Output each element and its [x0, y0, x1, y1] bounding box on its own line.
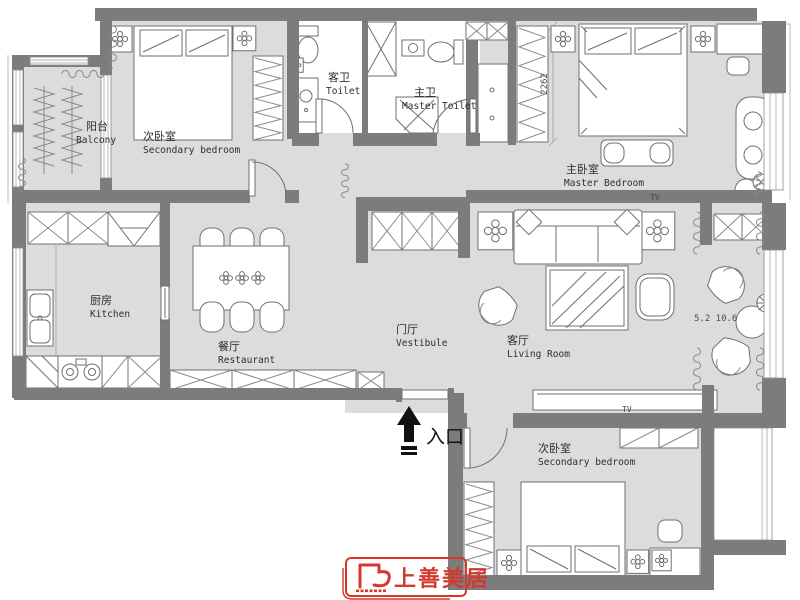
nightstand-lamp-icon [497, 550, 521, 576]
nightstand-lamp-icon [691, 26, 715, 52]
cabinet-icon [487, 22, 508, 40]
bay-window-icon [714, 428, 772, 540]
dining-chair-icon [200, 302, 284, 332]
vestibule-closet [372, 212, 462, 250]
sink-icon [402, 40, 424, 56]
bed-icon [579, 24, 687, 136]
cabinet-icon [102, 356, 128, 388]
label-dining-zh: 餐厅 [218, 339, 240, 353]
dining-table-icon [193, 246, 289, 310]
toilet-icon [298, 26, 318, 63]
corner-cabinet-icon [26, 356, 58, 388]
nightstand-lamp-icon [551, 26, 575, 52]
label-bedroom-bottom-en: Secondary bedroom [538, 457, 636, 468]
cabinet-icon [714, 214, 742, 240]
range-hood-icon [108, 212, 160, 246]
toilet-icon [428, 40, 463, 64]
dining-furniture [193, 228, 289, 332]
label-bedroom-top-zh: 次卧室 [143, 129, 176, 143]
bed-icon [521, 482, 625, 576]
wardrobe-icon [464, 482, 494, 576]
label-bedroom-top-en: Secondary bedroom [143, 145, 241, 156]
label-kitchen-zh: 厨房 [90, 294, 112, 307]
label-guest-toilet-zh: 客卫 [328, 70, 350, 84]
kitchen-sink-icon [27, 290, 53, 346]
label-living-en: Living Room [507, 349, 570, 360]
shower-icon [366, 22, 396, 76]
sofa-icon [514, 209, 642, 264]
label-living-zh: 客厅 [507, 333, 529, 347]
label-bedroom-bottom-zh: 次卧室 [538, 441, 571, 455]
area-note-text: 5.2 10.6 [694, 314, 737, 324]
bench-icon [601, 140, 673, 166]
tv-label-living: TV [622, 405, 632, 414]
cabinet-icon [68, 212, 108, 244]
label-kitchen-en: Kitchen [90, 309, 130, 320]
stove-icon [58, 356, 102, 388]
floor-plan-page: 阳台 Balcony 次卧室 Secondary bedroom 客卫 Toil… [0, 0, 800, 600]
label-vestibule-zh: 门厅 [396, 322, 418, 336]
label-balcony-zh: 阳台 [86, 119, 108, 133]
label-vestibule-en: Vestibule [396, 338, 448, 349]
entrance-arrow-bar [401, 452, 417, 455]
label-guest-toilet-en: Toilet [326, 86, 360, 97]
label-dining-en: Restaurant [218, 355, 275, 366]
dimension-text: 2262 [540, 73, 550, 95]
label-master-toilet-en: Master Toilet [402, 101, 476, 112]
vanity-counter-icon [478, 64, 508, 142]
pouf-icon [636, 274, 674, 320]
wardrobe-icon [253, 56, 283, 140]
dining-cabinet-row [170, 370, 384, 390]
label-master-bedroom-zh: 主卧室 [566, 162, 599, 176]
kitchen-sliding-door-icon [161, 286, 169, 320]
label-master-bedroom-en: Master Bedroom [564, 178, 644, 189]
label-balcony-en: Balcony [76, 135, 116, 146]
cabinet-icon [28, 212, 68, 244]
entrance-label: 入口 [426, 426, 464, 448]
entrance-arrow-bar [401, 446, 417, 450]
label-master-toilet-zh: 主卫 [414, 86, 436, 99]
logo-mark-icon [356, 565, 389, 592]
logo-company-name: 上善美居 [394, 566, 490, 592]
nightstand-lamp-icon [627, 550, 649, 573]
cabinet-icon [128, 356, 162, 388]
coffee-table-icon [546, 266, 628, 330]
bed-icon [134, 26, 232, 140]
nightstand-lamp-icon [233, 26, 256, 51]
cabinet-icon [466, 22, 487, 40]
tv-label-master: TV [650, 193, 660, 202]
floor-plan-drawing: 阳台 Balcony 次卧室 Secondary bedroom 客卫 Toil… [0, 0, 800, 600]
cabinet-icon [620, 428, 659, 448]
cabinet-icon [659, 428, 698, 448]
